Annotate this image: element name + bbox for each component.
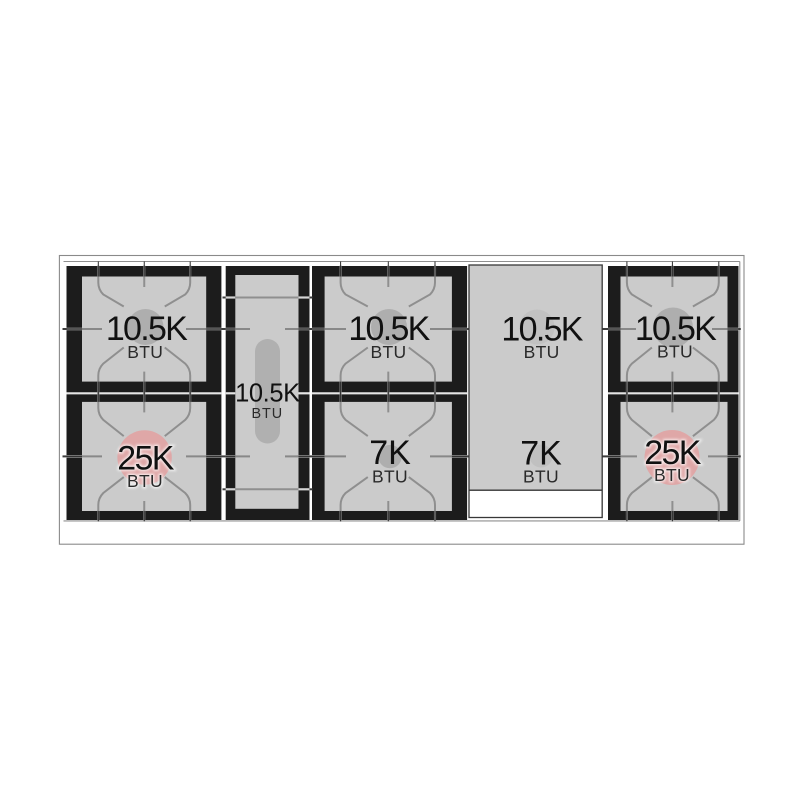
svg-text:BTU: BTU <box>657 342 693 362</box>
svg-text:BTU: BTU <box>524 342 560 362</box>
svg-text:10.5K: 10.5K <box>235 379 300 407</box>
svg-text:BTU: BTU <box>654 465 690 485</box>
svg-text:BTU: BTU <box>127 471 163 491</box>
svg-text:BTU: BTU <box>127 342 163 362</box>
svg-text:BTU: BTU <box>523 467 559 487</box>
svg-text:BTU: BTU <box>371 342 407 362</box>
svg-text:BTU: BTU <box>252 406 283 422</box>
svg-text:BTU: BTU <box>372 467 408 487</box>
